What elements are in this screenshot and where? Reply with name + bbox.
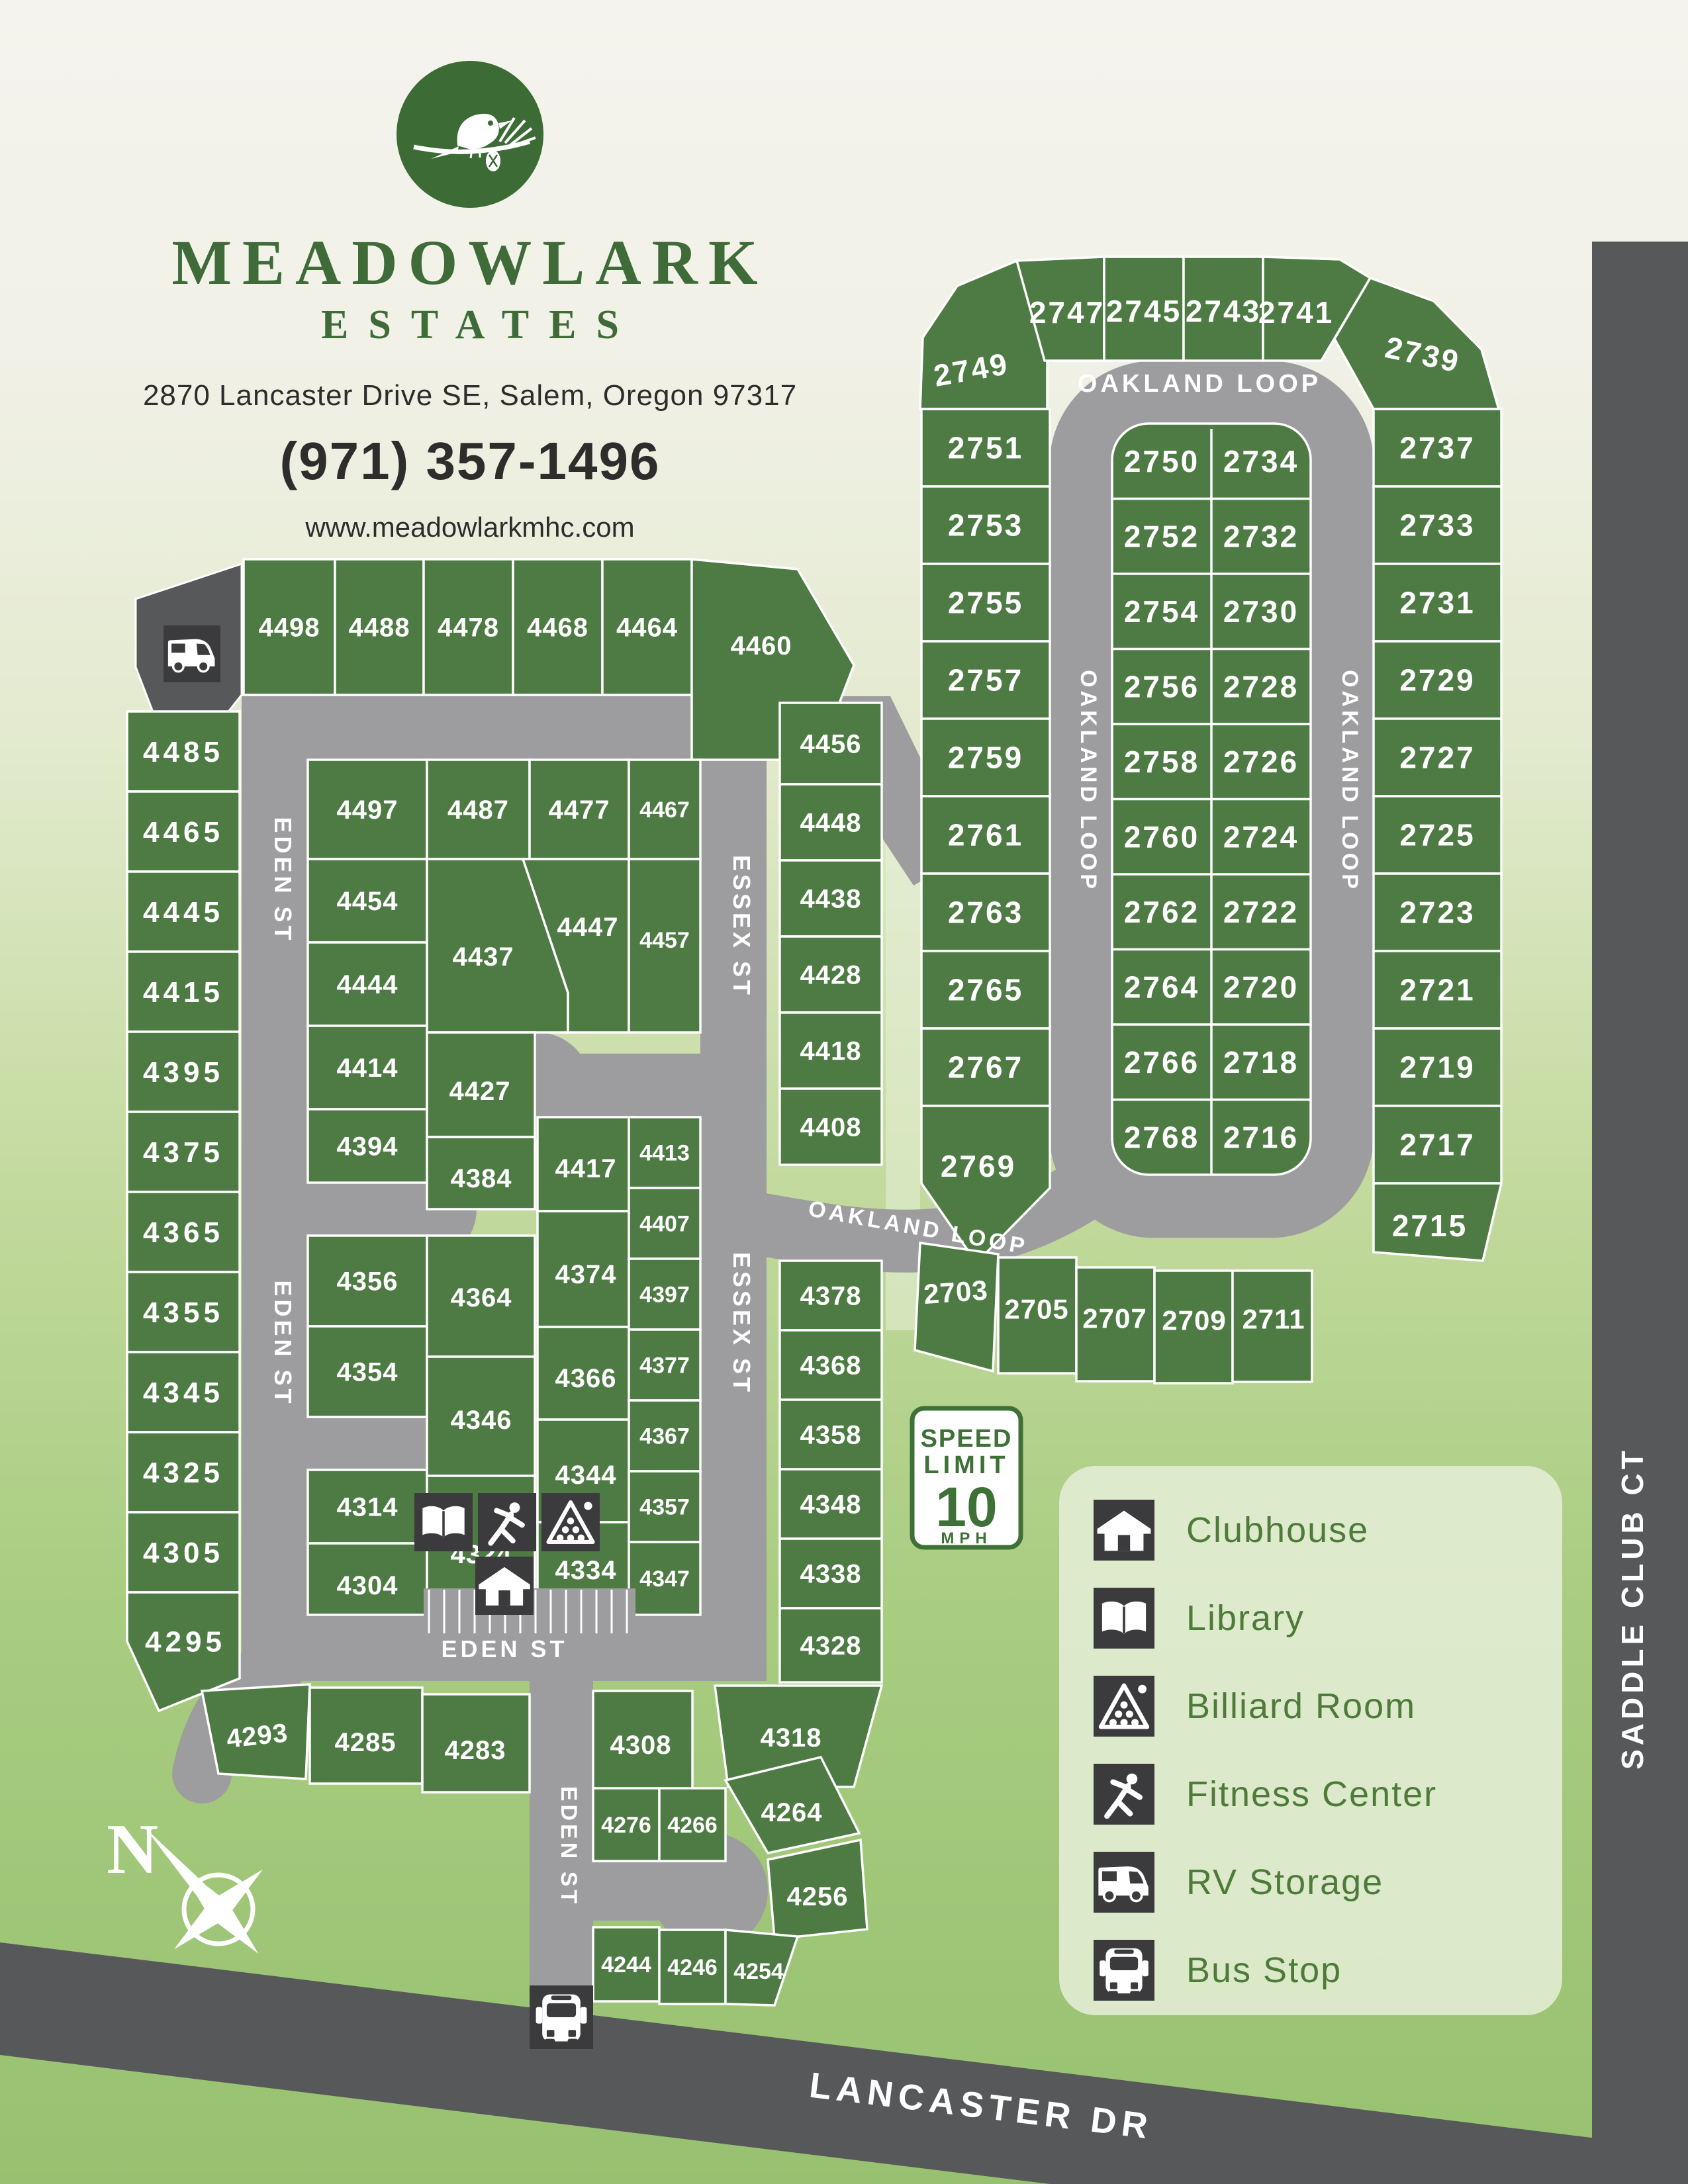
community-subtitle: ESTATES [0, 302, 940, 349]
lot-4325: 4325 [127, 1432, 240, 1512]
lot-number: 4283 [445, 1736, 506, 1765]
lot-4293: 4293 [202, 1684, 310, 1779]
lot-number: 4364 [451, 1283, 512, 1312]
flyer-page: 4498448844784468446444604485446544454415… [0, 0, 1688, 2184]
oakland-inner-lots: 2750275227542756275827602762276427662768… [1112, 424, 1311, 1175]
lot-2725: 2725 [1374, 796, 1501, 874]
lot-2763: 2763 [921, 874, 1050, 951]
lot-number: 4347 [639, 1567, 690, 1592]
lot-4377: 4377 [629, 1330, 700, 1400]
lot-number: 4428 [800, 961, 862, 990]
lot-number: 2709 [1162, 1305, 1226, 1336]
lot-number: 4377 [639, 1353, 690, 1378]
lot-4244: 4244 [593, 1927, 659, 2001]
lot-number: 4498 [259, 614, 320, 643]
lot-number: 4345 [143, 1377, 224, 1409]
legend-label: Fitness Center [1186, 1774, 1437, 1814]
lot-number: 4445 [143, 896, 224, 929]
lot-number: 2715 [1392, 1208, 1468, 1243]
rv-icon [1094, 1852, 1154, 1913]
bus-icon [1094, 1940, 1154, 2001]
lot-4358: 4358 [780, 1400, 882, 1469]
lot-number: 4413 [639, 1140, 690, 1165]
lot-4415: 4415 [127, 952, 240, 1032]
lot-number: 2766 [1124, 1045, 1199, 1079]
lot-4283: 4283 [422, 1694, 530, 1792]
lot-2709: 2709 [1154, 1271, 1233, 1383]
lot-number: 2703 [923, 1274, 989, 1310]
lot-number: 2762 [1124, 895, 1199, 929]
lot-2757: 2757 [921, 641, 1050, 719]
legend-label: Bus Stop [1186, 1950, 1342, 1990]
lot-4418: 4418 [780, 1013, 882, 1089]
lot-4444: 4444 [308, 942, 427, 1026]
legend-label: Billiard Room [1186, 1686, 1416, 1726]
lot-4427: 4427 [427, 1032, 535, 1137]
lot-number: 2727 [1399, 741, 1475, 775]
lot-4246: 4246 [659, 1930, 726, 2004]
lot-number: 4437 [453, 942, 514, 972]
lot-2733: 2733 [1374, 486, 1501, 564]
lot-4457: 4457 [629, 859, 700, 1032]
lot-number: 2707 [1082, 1303, 1147, 1334]
street-label-saddle-club-ct: SADDLE CLUB CT [1615, 1447, 1650, 1770]
lot-number: 2716 [1223, 1120, 1299, 1154]
street-label-oakland-loop: OAKLAND LOOP [1337, 670, 1362, 892]
lot-number: 4308 [610, 1731, 672, 1760]
lot-number: 4304 [337, 1571, 399, 1600]
lot-2739: 2739 [1335, 278, 1499, 409]
lot-number: 2756 [1124, 669, 1199, 704]
lot-number: 2722 [1223, 895, 1299, 929]
lot-4375: 4375 [127, 1112, 240, 1192]
lot-number: 2717 [1399, 1128, 1475, 1162]
lot-number: 4408 [800, 1113, 862, 1142]
lot-number: 4285 [335, 1728, 397, 1757]
lot-4445: 4445 [127, 872, 240, 952]
lot-number: 4314 [337, 1493, 399, 1522]
lot-2729: 2729 [1374, 641, 1501, 719]
lot-number: 4438 [800, 885, 862, 914]
street-label-eden-st: EDEN ST [556, 1786, 581, 1907]
lot-number: 4394 [337, 1132, 399, 1161]
library-icon [1094, 1588, 1154, 1649]
lot-4477: 4477 [530, 760, 629, 859]
lot-4378: 4378 [780, 1261, 882, 1330]
lot-4485: 4485 [127, 711, 240, 792]
lot-number: 2745 [1106, 294, 1182, 328]
lot-number: 4276 [601, 1813, 651, 1838]
lot-number: 2705 [1004, 1294, 1068, 1325]
lot-4276: 4276 [593, 1788, 659, 1861]
billiard-icon [541, 1493, 600, 1551]
lot-number: 4478 [438, 614, 499, 643]
lot-4355: 4355 [127, 1272, 240, 1352]
speed-sign-text: LIMIT [923, 1451, 1009, 1479]
lot-number: 4487 [447, 796, 509, 825]
lot-4417: 4417 [538, 1117, 634, 1211]
lot-number: 4427 [449, 1077, 511, 1106]
lot-number: 2741 [1258, 295, 1334, 330]
lot-number: 2732 [1223, 519, 1299, 553]
lot-number: 2711 [1242, 1304, 1305, 1335]
lot-number: 4368 [800, 1351, 862, 1381]
lot-2743: 2743 [1184, 257, 1263, 361]
lot-2705: 2705 [998, 1257, 1076, 1373]
lot-4346: 4346 [427, 1357, 535, 1476]
lot-number: 4254 [733, 1959, 784, 1984]
lot-2767: 2767 [921, 1028, 1050, 1106]
lot-4305: 4305 [127, 1512, 240, 1592]
speed-sign-value: 10 [935, 1476, 997, 1538]
lot-4488: 4488 [335, 559, 424, 695]
library-icon [414, 1493, 473, 1551]
lot-2723: 2723 [1374, 874, 1501, 951]
lot-number: 4244 [601, 1952, 651, 1978]
lot-4354: 4354 [308, 1326, 427, 1417]
lot-number: 4417 [555, 1154, 617, 1183]
lot-number: 2758 [1124, 745, 1199, 779]
lot-2717: 2717 [1374, 1106, 1501, 1183]
lot-4478: 4478 [424, 559, 513, 695]
lot-number: 4365 [143, 1216, 224, 1249]
lot-number: 4497 [337, 796, 399, 825]
lot-4357: 4357 [629, 1471, 700, 1542]
fitness-icon [1094, 1764, 1154, 1825]
lot-number: 4246 [667, 1955, 718, 1980]
lot-number: 2768 [1124, 1120, 1199, 1154]
lot-number: 2754 [1124, 594, 1199, 629]
lot-4374: 4374 [538, 1211, 634, 1327]
lot-number: 4348 [800, 1490, 862, 1520]
address-line: 2870 Lancaster Drive SE, Salem, Oregon 9… [0, 379, 940, 412]
community-title: MEADOWLARK [0, 226, 940, 299]
street-label-oakland-loop: OAKLAND LOOP [1078, 370, 1321, 398]
lot-number: 4384 [451, 1164, 512, 1193]
lot-2755: 2755 [921, 564, 1050, 641]
lot-4348: 4348 [780, 1469, 882, 1539]
lot-2721: 2721 [1374, 951, 1501, 1028]
lot-4366: 4366 [538, 1327, 634, 1420]
lot-number: 4295 [145, 1625, 226, 1658]
lot-4467: 4467 [629, 760, 700, 859]
street-label-oakland-loop: OAKLAND LOOP [1076, 670, 1101, 892]
billiard-icon [1094, 1676, 1154, 1737]
legend-label: RV Storage [1186, 1862, 1383, 1902]
lot-number: 2769 [941, 1149, 1016, 1183]
lot-4456: 4456 [780, 703, 882, 784]
compass-north-label: N [107, 1810, 158, 1889]
lot-4395: 4395 [127, 1032, 240, 1112]
bus-icon [530, 1985, 593, 2049]
lot-4448: 4448 [780, 784, 882, 860]
lot-4356: 4356 [308, 1236, 427, 1326]
lot-number: 2747 [1029, 295, 1105, 330]
lot-number: 2752 [1124, 519, 1199, 553]
lot-4413: 4413 [629, 1117, 700, 1188]
lot-number: 2719 [1399, 1050, 1475, 1085]
lot-number: 2729 [1399, 663, 1475, 698]
lot-number: 4354 [337, 1358, 399, 1387]
lot-number: 4415 [143, 976, 224, 1009]
speed-limit-sign: SPEEDLIMIT10MPH [912, 1408, 1021, 1547]
lot-2753: 2753 [921, 486, 1050, 564]
lot-number: 2755 [948, 586, 1023, 620]
lot-4497: 4497 [308, 760, 427, 859]
lot-number: 2743 [1186, 294, 1261, 328]
lot-number: 4264 [761, 1798, 823, 1827]
lot-number: 2724 [1223, 819, 1299, 854]
lot-number: 4467 [639, 797, 690, 823]
street-label-eden-st: EDEN ST [269, 1280, 297, 1406]
lot-number: 4444 [337, 970, 399, 999]
phone-number: (971) 357-1496 [0, 431, 940, 492]
legend: ClubhouseLibraryBilliard RoomFitness Cen… [1059, 1466, 1562, 2015]
lot-2719: 2719 [1374, 1028, 1501, 1106]
lot-2727: 2727 [1374, 719, 1501, 796]
lot-number: 4456 [800, 730, 862, 759]
lot-number: 2767 [948, 1050, 1023, 1085]
lot-4414: 4414 [308, 1026, 427, 1109]
street-label-essex-st: ESSEX ST [728, 855, 755, 998]
lot-number: 2759 [948, 741, 1023, 775]
lot-number: 2760 [1124, 819, 1199, 854]
lot-4328: 4328 [780, 1608, 882, 1682]
legend-label: Clubhouse [1186, 1510, 1369, 1550]
lot-4367: 4367 [629, 1400, 700, 1471]
lot-number: 2757 [948, 663, 1023, 698]
lot-number: 4346 [451, 1406, 512, 1435]
lot-number: 2734 [1223, 444, 1299, 478]
lot-number: 4448 [800, 809, 862, 838]
lot-number: 4305 [143, 1537, 224, 1569]
lot-2765: 2765 [921, 951, 1050, 1028]
lot-number: 4378 [800, 1282, 862, 1311]
lot-number: 4366 [555, 1364, 617, 1393]
lot-number: 4457 [639, 928, 690, 953]
header: MEADOWLARK ESTATES 2870 Lancaster Drive … [0, 0, 940, 543]
lot-number: 2733 [1399, 508, 1475, 543]
lot-number: 2728 [1223, 669, 1299, 704]
lot-4407: 4407 [629, 1188, 700, 1259]
street-label-eden-st: EDEN ST [269, 817, 297, 943]
lot-number: 4468 [527, 614, 588, 643]
lot-4408: 4408 [780, 1089, 882, 1165]
lot-number: 4367 [639, 1424, 690, 1449]
street-label-essex-st: ESSEX ST [728, 1252, 755, 1395]
meadowlark-bird-logo-icon [0, 58, 940, 214]
lot-number: 2723 [1399, 895, 1475, 930]
lot-number: 4325 [143, 1457, 224, 1489]
lot-number: 4374 [555, 1260, 617, 1289]
lot-number: 4485 [143, 736, 224, 768]
lot-2759: 2759 [921, 719, 1050, 796]
lot-2731: 2731 [1374, 564, 1501, 641]
lot-2761: 2761 [921, 796, 1050, 874]
lot-4438: 4438 [780, 860, 882, 936]
lot-2715: 2715 [1374, 1183, 1501, 1261]
lot-4465: 4465 [127, 792, 240, 872]
lot-2711: 2711 [1233, 1271, 1312, 1382]
lot-4487: 4487 [427, 760, 530, 859]
lot-number: 4395 [143, 1056, 224, 1089]
lot-2737: 2737 [1374, 409, 1501, 486]
lot-number: 4447 [557, 913, 619, 942]
saddle-club-ct-road [1592, 242, 1688, 2184]
rv-icon [164, 625, 220, 682]
lot-number: 4318 [761, 1723, 822, 1752]
clubhouse-icon [475, 1557, 534, 1615]
fitness-icon [478, 1493, 536, 1551]
lot-2707: 2707 [1076, 1267, 1154, 1381]
lot-number: 2761 [948, 818, 1023, 852]
lot-2751: 2751 [921, 409, 1050, 486]
lot-4454: 4454 [308, 859, 427, 942]
lot-number: 4358 [800, 1421, 862, 1450]
lot-4498: 4498 [244, 559, 335, 695]
lot-number: 4397 [639, 1282, 690, 1307]
lot-4256: 4256 [768, 1840, 867, 1939]
lot-4347: 4347 [629, 1542, 700, 1615]
lot-number: 2765 [948, 973, 1023, 1007]
lot-number: 4418 [800, 1037, 862, 1066]
lot-4266: 4266 [659, 1788, 726, 1861]
speed-sign-text: SPEED [921, 1425, 1013, 1453]
lot-number: 2750 [1124, 444, 1199, 478]
lot-number: 4338 [800, 1560, 862, 1589]
legend-label: Library [1186, 1598, 1305, 1638]
speed-sign-unit: MPH [941, 1529, 992, 1547]
lot-number: 2751 [948, 431, 1023, 465]
lot-number: 4375 [143, 1136, 224, 1169]
lot-number: 4355 [143, 1297, 224, 1329]
lot-4364: 4364 [427, 1236, 535, 1357]
lot-number: 2763 [948, 895, 1023, 930]
website-url: www.meadowlarkmhc.com [0, 512, 940, 543]
lot-4285: 4285 [310, 1688, 422, 1784]
lot-number: 4464 [616, 614, 678, 643]
lot-number: 4334 [555, 1556, 617, 1585]
lot-number: 4356 [337, 1267, 399, 1297]
lot-number: 4266 [667, 1813, 718, 1838]
lot-4314: 4314 [308, 1470, 427, 1543]
lot-number: 2720 [1223, 970, 1299, 1004]
lot-4384: 4384 [427, 1137, 535, 1209]
lot-number: 4328 [800, 1631, 862, 1661]
lot-4397: 4397 [629, 1259, 700, 1330]
lot-number: 4454 [337, 887, 399, 916]
lot-number: 4488 [349, 614, 410, 643]
clubhouse-icon [1094, 1500, 1154, 1561]
lot-4464: 4464 [602, 559, 692, 695]
lot-number: 2721 [1399, 973, 1475, 1007]
lot-number: 4460 [731, 631, 792, 660]
lot-number: 2718 [1223, 1045, 1299, 1079]
lot-number: 2726 [1223, 745, 1299, 779]
lot-4428: 4428 [780, 936, 882, 1013]
lot-number: 2737 [1399, 431, 1475, 465]
lot-number: 2753 [948, 508, 1023, 543]
lot-4365: 4365 [127, 1192, 240, 1272]
lot-number: 4477 [549, 796, 610, 825]
lot-number: 4357 [639, 1494, 690, 1520]
lot-number: 2764 [1124, 970, 1199, 1004]
lot-4254: 4254 [726, 1930, 798, 2005]
lot-number: 4344 [555, 1461, 617, 1490]
lot-4368: 4368 [780, 1330, 882, 1400]
lot-4304: 4304 [308, 1543, 427, 1615]
lot-4308: 4308 [593, 1691, 692, 1790]
lot-number: 4414 [337, 1054, 399, 1083]
lot-2745: 2745 [1104, 257, 1184, 361]
lot-number: 2731 [1399, 586, 1475, 620]
lot-4338: 4338 [780, 1539, 882, 1608]
lot-number: 4407 [639, 1211, 690, 1236]
street-label-eden-st: EDEN ST [441, 1635, 567, 1662]
lot-4468: 4468 [513, 559, 602, 695]
lot-4345: 4345 [127, 1352, 240, 1432]
lot-number: 4465 [143, 816, 224, 848]
lot-number: 4256 [787, 1882, 849, 1911]
lot-4394: 4394 [308, 1109, 427, 1183]
lot-number: 2730 [1223, 594, 1299, 629]
lot-number: 2725 [1399, 818, 1475, 852]
lot-2703: 2703 [915, 1243, 998, 1371]
